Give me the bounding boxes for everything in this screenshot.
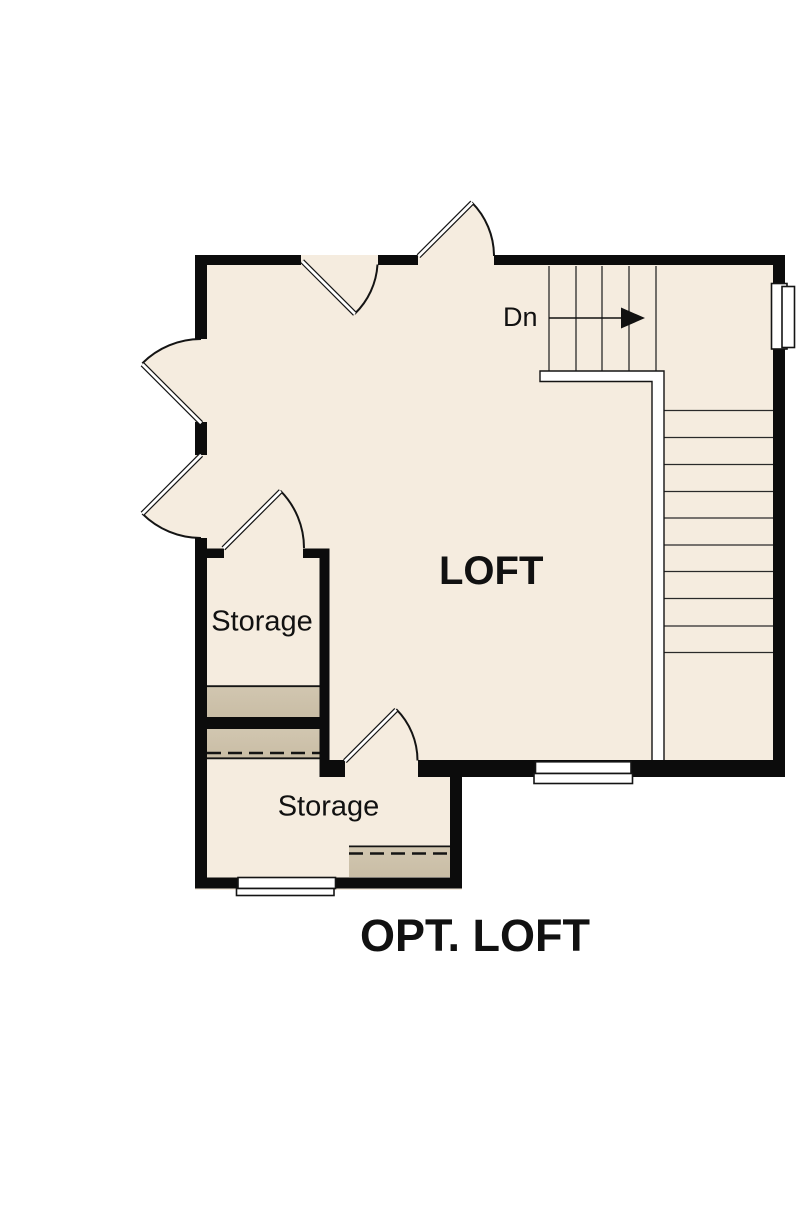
svg-text:Storage: Storage: [278, 791, 380, 823]
svg-text:OPT. LOFT: OPT. LOFT: [360, 910, 590, 961]
svg-text:LOFT: LOFT: [439, 549, 543, 593]
svg-text:Dn: Dn: [503, 302, 538, 332]
svg-text:Storage: Storage: [211, 606, 313, 638]
